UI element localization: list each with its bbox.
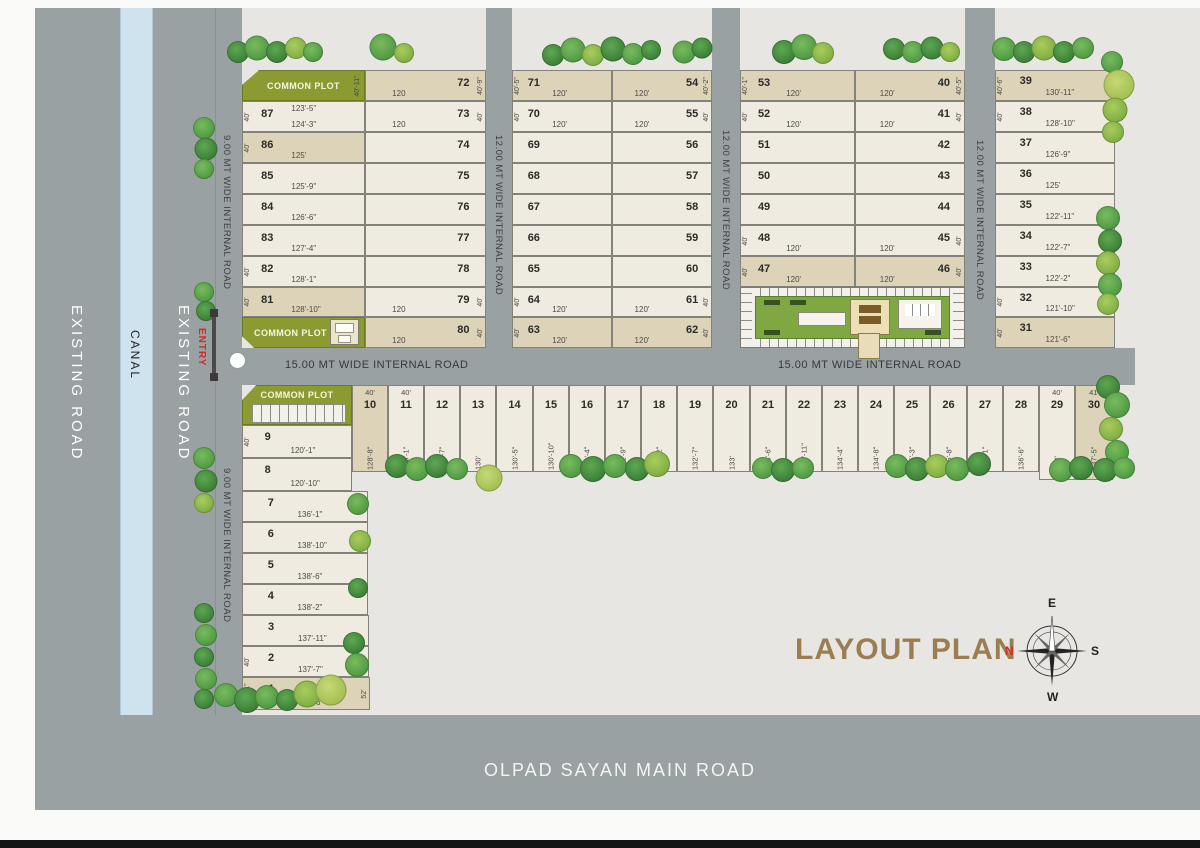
plot-cell: 82 128'-1" 40' [242,256,365,287]
plot-depth-dimension: 120' [635,336,650,345]
tree-icon [1097,293,1119,315]
tree-icon [967,452,991,476]
plot-number: 34 [1020,230,1032,242]
plot-number: 39 [1020,75,1032,87]
canal-label: CANAL [128,330,142,440]
plot-depth-dimension: 133' [727,418,736,470]
plot-number: 8 [265,464,271,476]
plot-number: 5 [268,559,274,571]
clubhouse-area [740,287,965,348]
plot-number: 87 [261,108,273,120]
plot-cell: 55 120' 40' [612,101,712,132]
plot-number: 57 [686,170,698,182]
plot-depth-dimension: 130'-11" [1046,88,1075,97]
plot-number: 44 [938,201,950,213]
plot-cell: 61 120' 40' [612,287,712,317]
plot-number: 10 [353,399,387,411]
plot-number: 80 [457,324,469,336]
plot-depth-dimension: 136'-6" [1017,418,1026,470]
plot-depth-dimension: 137'-11" [298,634,327,643]
tree-icon [1098,229,1122,253]
plot-cell: 79 120 40' [365,287,486,317]
plot-depth-dimension: 127'-4" [291,244,316,253]
parking-strip-bottom [752,339,953,347]
plot-cell: 57 [612,163,712,194]
plot-depth-dimension: 125' [291,151,306,160]
plot-cell: 44 [855,194,965,225]
plot-depth-dimension: 120' [635,89,650,98]
tree-icon [195,668,217,690]
tree-icon [195,624,217,646]
page-title: LAYOUT PLAN [795,633,1017,667]
plot-width-dimension: 40' [956,267,963,276]
tree-icon [1099,417,1123,441]
common-plot-parking [252,404,346,423]
tree-icon [370,34,397,61]
plot-number: 3 [268,621,274,633]
plot-depth-dimension: 122'-7" [1046,243,1071,252]
tree-icon [476,465,503,492]
plot-depth-dimension: 120' [552,89,567,98]
compass-icon [1005,598,1100,703]
plot-width-dimension: 40' [514,297,521,306]
tree-icon [345,653,369,677]
tree-icon [580,456,606,482]
plot-width-dimension: 40' [956,112,963,121]
plot-cell: 28 136'-6" [1003,385,1039,472]
road-12mt-label-3: 12.00 MT WIDE INTERNAL ROAD [974,105,985,335]
plot-depth-dimension: 128'-1" [291,275,316,284]
bench [764,300,780,305]
tree-icon [945,457,969,481]
tree-icon [940,42,960,62]
road-9mt-label-top: 9.00 MT WIDE INTERNAL ROAD [221,112,232,312]
plot-number: 56 [686,139,698,151]
existing-road-right-label: EXISTING ROAD [175,288,192,478]
plot-cell: 34 122'-7" [995,225,1115,256]
plot-number: 60 [686,263,698,275]
plot-number: 51 [758,139,770,151]
plot-number: 25 [895,399,929,411]
plot-width-dimension: 40' [477,112,484,121]
plot-width-dimension: 40' [997,328,1004,337]
plot-number: 46 [938,263,950,275]
plot-number: 64 [528,294,540,306]
tree-icon [194,282,214,302]
plot-number: 59 [686,232,698,244]
tree-icon [1113,457,1135,479]
plot-number: 53 [758,77,770,89]
plot-cell: 37 126'-9" [995,132,1115,163]
plot-width-dimension: 40'-5" [514,77,521,95]
corner-dimension-label: 40'-11" [354,75,361,96]
tree-icon [195,470,218,493]
plot-width-dimension: 40' [244,437,251,446]
plot-number: 26 [931,399,966,411]
compass-north: N [1005,644,1014,658]
plot-width-dimension: 40' [956,236,963,245]
plot-number: 28 [1004,399,1038,411]
tree-icon [303,42,323,62]
plot-depth-dimension: 120 [392,305,405,314]
plot-number: 23 [823,399,857,411]
plot-number: 33 [1020,261,1032,273]
plot-number: 38 [1020,106,1032,118]
plot-depth-dimension: 120' [880,89,895,98]
plot-number: 35 [1020,199,1032,211]
plot-cell: 81 128'-10" 40' [242,287,365,317]
plot-number: 50 [758,170,770,182]
plot-cell: 86 125' 40' [242,132,365,163]
plot-number: 77 [457,232,469,244]
compass-east: E [1048,596,1056,610]
road-9mt-label-bottom: 9.00 MT WIDE INTERNAL ROAD [221,445,232,645]
plot-width-dimension: 40'-2" [703,77,710,95]
plot-number: 79 [457,294,469,306]
plot-cell: 83 127'-4" [242,225,365,256]
road-15mt-label-left: 15.00 MT WIDE INTERNAL ROAD [285,359,468,371]
plot-number: 21 [751,399,785,411]
tree-icon [1104,392,1130,418]
plot-cell: 84 126'-6" [242,194,365,225]
plot-number: 2 [268,652,274,664]
tree-icon [316,675,347,706]
plot-cell: 40 120' 40'-5" [855,70,965,101]
plot-number: 61 [686,294,698,306]
plot-number: 48 [758,232,770,244]
plot-cell: 49 [740,194,855,225]
tree-icon [193,447,215,469]
bench [925,330,941,335]
plot-cell: 23 134'-4" [822,385,858,472]
plot-number: 11 [389,399,423,411]
plot-width-dimension: 40' [703,112,710,121]
plot-cell: 41 120' 40' [855,101,965,132]
tree-icon [194,689,214,709]
plot-depth-dimension: 138'-2" [298,603,323,612]
plot-depth-dimension: 120' [786,89,801,98]
club-rooms [798,312,846,326]
plot-width-dimension: 40' [477,297,484,306]
plot-number: 78 [457,263,469,275]
plot-depth-dimension: 122'-2" [1046,274,1071,283]
plot-number: 6 [268,528,274,540]
plot-depth-dimension: 128'-10" [1046,119,1075,128]
plot-number: 49 [758,201,770,213]
tree-icon [194,647,214,667]
tree-icon [343,632,365,654]
plot-number: 43 [938,170,950,182]
tree-icon [349,530,371,552]
plot-depth-dimension: 120' [552,305,567,314]
plot-frontage-label: 40' [389,388,423,397]
plot-number: 81 [261,294,273,306]
plot-cell: 78 [365,256,486,287]
tree-icon [1072,37,1094,59]
plot-depth-dimension: 120'-1" [291,446,316,455]
tree-icon [446,458,468,480]
common-plot-label: COMMON PLOT [267,81,340,91]
plot-cell: 60 [612,256,712,287]
plot-number: 62 [686,324,698,336]
plot-cell: 5 138'-6" [242,553,368,584]
plot-width-dimension: 40' [997,297,1004,306]
plot-number: 83 [261,232,273,244]
common-plot-label: COMMON PLOT [254,328,327,338]
plot-depth-dimension: 132'-7" [691,418,700,470]
plot-cell: 68 [512,163,612,194]
plot-number: 70 [528,108,540,120]
plot-width-dimension: 40' [742,236,749,245]
plot-depth-dimension-2: 123'-5" [291,104,316,113]
plot-depth-dimension: 138'-6" [298,572,323,581]
plot-cell: 36 125' [995,163,1115,194]
plot-number: 82 [261,263,273,275]
plot-depth-dimension: 138'-10" [298,541,327,550]
plot-number: 45 [938,232,950,244]
plot-number: 20 [714,399,749,411]
roundabout-dot [230,353,245,368]
plot-width-dimension: 40' [244,143,251,152]
compass-rose: E S W N [1005,598,1100,703]
plot-cell: 70 120' 40' [512,101,612,132]
parking-strip-left [741,288,752,347]
plot-number: 71 [528,77,540,89]
plot-width-dimension: 40' [703,328,710,337]
plot-cell: 56 [612,132,712,163]
tree-icon [692,38,713,59]
plot-number: 32 [1020,292,1032,304]
plot-number: 36 [1020,168,1032,180]
plot-cell: 76 [365,194,486,225]
tree-icon [195,138,218,161]
plot-cell: 74 [365,132,486,163]
plot-cell: 51 [740,132,855,163]
plot-number: 75 [457,170,469,182]
plot-cell: 52 120' 40' [740,101,855,132]
tree-icon [1102,121,1124,143]
plot-cell: 14 130'-5" [496,385,533,472]
plot-depth-dimension: 126'-6" [291,213,316,222]
plot-depth-dimension: 120' [635,120,650,129]
tree-icon [348,578,368,598]
plot-depth-dimension: 121'-10" [1046,304,1075,313]
tree-icon [1103,98,1128,123]
plot-number: 12 [425,399,459,411]
road-15mt-label-right: 15.00 MT WIDE INTERNAL ROAD [778,359,961,371]
tree-icon [1069,456,1093,480]
plot-depth-dimension: 130'-5" [510,418,519,470]
plot-depth-dimension: 136'-1" [298,510,323,519]
plot-number: 69 [528,139,540,151]
plot-number: 63 [528,324,540,336]
plot-cell: 46 120' 40' [855,256,965,287]
bottom-border-bar [0,840,1200,848]
plot-depth-dimension: 120' [880,120,895,129]
plot-number: 74 [457,139,469,151]
plot-cell: 45 120' 40' [855,225,965,256]
plot-width-dimension: 40' [244,267,251,276]
plot-cell: 42 [855,132,965,163]
plot-cell: 63 120' 40' [512,317,612,348]
compass-west: W [1047,690,1058,704]
plot-cell: 48 120' 40' [740,225,855,256]
tree-icon [347,493,369,515]
plot-cell: 8 120'-10" [242,458,352,491]
plot-cell: 87 124'-3" 123'-5" 40' [242,101,365,132]
plot-cell: 80 120 40' [365,317,486,348]
plot-number: 84 [261,201,273,213]
plot-width-dimension: 40' [742,112,749,121]
common-plot-top: COMMON PLOT [242,70,365,101]
plot-cell: 9 120'-1" 40' [242,425,352,458]
plot-number: 54 [686,77,698,89]
security-cabin [330,319,359,345]
plot-depth-dimension: 120' [786,120,801,129]
plot-number: 17 [606,399,640,411]
plot-number: 24 [859,399,893,411]
plot-depth-dimension: 120' [880,244,895,253]
club-annex [898,299,942,329]
plot-number: 4 [268,590,274,602]
tree-icon [812,42,834,64]
plot-depth-dimension: 120 [392,89,405,98]
plot-depth-dimension: 134'-8" [872,418,881,470]
plot-depth-dimension: 130'-10" [547,418,556,470]
plot-width-dimension-right: 52' [361,689,368,698]
plot-depth-dimension: 120 [392,336,405,345]
plot-depth-dimension: 120'-10" [291,479,320,488]
plot-depth-dimension: 121'-6" [1046,335,1071,344]
compass-south: S [1091,644,1099,658]
tree-icon [641,40,661,60]
plot-cell: 13 130' [460,385,496,472]
tree-icon [603,454,627,478]
plot-number: 58 [686,201,698,213]
plot-number: 72 [457,77,469,89]
plot-depth-dimension: 120' [786,244,801,253]
plot-depth-dimension: 125'-9" [291,182,316,191]
plot-cell: 65 [512,256,612,287]
plot-number: 42 [938,139,950,151]
plot-width-dimension: 40' [514,328,521,337]
bench [764,330,780,335]
plot-width-dimension: 40' [244,112,251,121]
plot-cell: 85 125'-9" [242,163,365,194]
olpad-main-road-label: OLPAD SAYAN MAIN ROAD [420,760,820,781]
plot-cell: 38 128'-10" 40' [995,101,1115,132]
plot-number: 40 [938,77,950,89]
tree-icon [194,159,214,179]
plot-depth-dimension: 128'-10" [291,305,320,314]
plot-number: 73 [457,108,469,120]
bench [790,300,806,305]
plot-number: 16 [570,399,604,411]
plot-depth-dimension: 122'-11" [1046,212,1075,221]
plot-width-dimension: 40' [477,328,484,337]
plot-depth-dimension: 126'-9" [1046,150,1071,159]
plot-frontage-label: 40' [1040,388,1074,397]
plot-number: 18 [642,399,676,411]
plot-cell: 72 120 40'-9" [365,70,486,101]
plot-depth-dimension: 125' [1046,181,1061,190]
plot-depth-dimension: 120 [392,120,405,129]
entry-gate [212,312,216,378]
plot-number: 13 [461,399,495,411]
plot-cell: 75 [365,163,486,194]
plot-depth-dimension: 124'-3" [291,120,316,129]
club-building [850,299,890,335]
plot-cell: 67 [512,194,612,225]
plot-depth-dimension: 128'-8" [366,418,375,470]
plot-number: 68 [528,170,540,182]
plot-depth-dimension: 120' [786,275,801,284]
plot-width-dimension: 40'-5" [956,77,963,95]
plot-cell: 40' 10 128'-8" [352,385,388,472]
plot-width-dimension: 40'-6" [997,77,1004,95]
plot-cell: 47 120' 40' [740,256,855,287]
plot-number: 85 [261,170,273,182]
plot-number: 27 [968,399,1002,411]
tree-icon [193,117,215,139]
tree-icon [1104,70,1135,101]
plot-number: 7 [268,497,274,509]
plot-number: 14 [497,399,532,411]
plot-cell: 20 133' [713,385,750,472]
road-12mt-label-1: 12.00 MT WIDE INTERNAL ROAD [493,100,504,330]
plot-cell: 39 130'-11" 40'-6" [995,70,1115,101]
common-plot-label: COMMON PLOT [261,390,334,400]
plot-cell: 43 [855,163,965,194]
plot-width-dimension: 40' [742,267,749,276]
clubhouse-lawn [755,296,950,339]
parking-strip-right [953,288,964,347]
plot-number: 37 [1020,137,1032,149]
layout-plan-canvas: COMMON PLOT COMMON PLOT COMMON PLOT 87 1… [0,0,1200,848]
plot-cell: 64 120' 40' [512,287,612,317]
plot-cell: 19 132'-7" [677,385,713,472]
plot-cell: 71 120' 40'-5" [512,70,612,101]
plot-width-dimension: 40'-1" [742,77,749,95]
plot-number: 19 [678,399,712,411]
plot-cell: 31 121'-6" 40' [995,317,1115,348]
plot-width-dimension: 40'-9" [477,77,484,95]
plot-number: 47 [758,263,770,275]
road-12mt-label-2: 12.00 MT WIDE INTERNAL ROAD [720,95,731,325]
tree-icon [792,457,814,479]
plot-number: 67 [528,201,540,213]
plot-number: 41 [938,108,950,120]
plot-cell: 54 120' 40'-2" [612,70,712,101]
plot-cell: 66 [512,225,612,256]
plot-number: 66 [528,232,540,244]
plot-depth-dimension: 120' [635,305,650,314]
plot-cell: 62 120' 40' [612,317,712,348]
tree-icon [1096,251,1120,275]
plot-cell: 53 120' 40'-1" [740,70,855,101]
plot-width-dimension: 40' [244,297,251,306]
plot-number: 76 [457,201,469,213]
plot-cell: 77 [365,225,486,256]
tree-icon [644,451,670,477]
tree-icon [194,493,214,513]
plot-number: 52 [758,108,770,120]
plot-width-dimension: 40' [703,297,710,306]
plot-depth-dimension: 120' [880,275,895,284]
plot-depth-dimension: 120' [552,120,567,129]
tree-icon [194,603,214,623]
plot-number: 22 [787,399,821,411]
